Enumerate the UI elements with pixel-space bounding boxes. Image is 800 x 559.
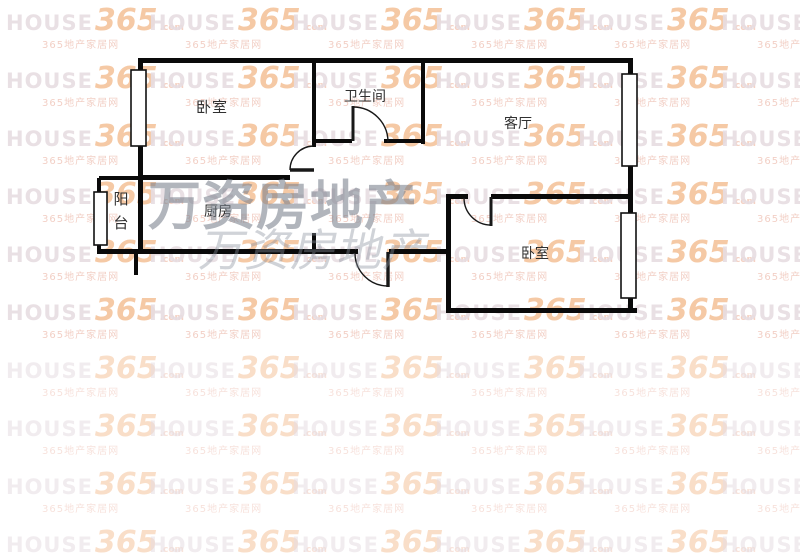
window-symbol-living	[622, 74, 637, 166]
door-swing-bedroom1	[290, 146, 314, 170]
room-label-balcony: 阳台	[112, 191, 129, 239]
door-swing-bathroom	[353, 106, 388, 142]
wall-hall-west-lower	[312, 233, 316, 254]
room-label-bedroom-right: 卧室	[521, 247, 549, 262]
wall-bathroom-bottom-right	[384, 139, 425, 143]
window-symbol-bedroom2	[621, 213, 636, 298]
wall-bedroom1-bottom	[138, 175, 290, 180]
room-label-bathroom: 卫生间	[344, 90, 386, 105]
room-label-kitchen: 厨房	[204, 205, 232, 220]
wall-bathroom-bottom-left	[312, 139, 352, 143]
floorplan-drawing	[0, 0, 800, 559]
door-swing-bedroom2	[464, 197, 491, 226]
wall-bedroom2-bottom	[446, 308, 637, 313]
door-swing-entrance	[355, 252, 388, 287]
room-label-living-room: 客厅	[504, 117, 532, 132]
wall-bottom-mid	[389, 249, 450, 254]
wall-bathroom-right	[421, 60, 425, 144]
wall-bathroom-left	[312, 60, 316, 147]
window-symbol-balcony	[94, 192, 107, 245]
wall-top	[140, 58, 632, 63]
floorplan-image: HOUSE365.com365地产家居网HOUSE365.com365地产家居网…	[0, 0, 800, 559]
wall-balcony-top	[99, 176, 140, 180]
wall-stub-below-kitchen	[134, 254, 138, 275]
window-symbol-bedroom1	[131, 70, 146, 146]
wall-bedroom2-left	[446, 196, 451, 313]
wall-bedroom2-top-right	[491, 194, 632, 199]
room-label-bedroom-top-left: 卧室	[196, 99, 228, 116]
wall-bottom-left	[97, 249, 358, 254]
